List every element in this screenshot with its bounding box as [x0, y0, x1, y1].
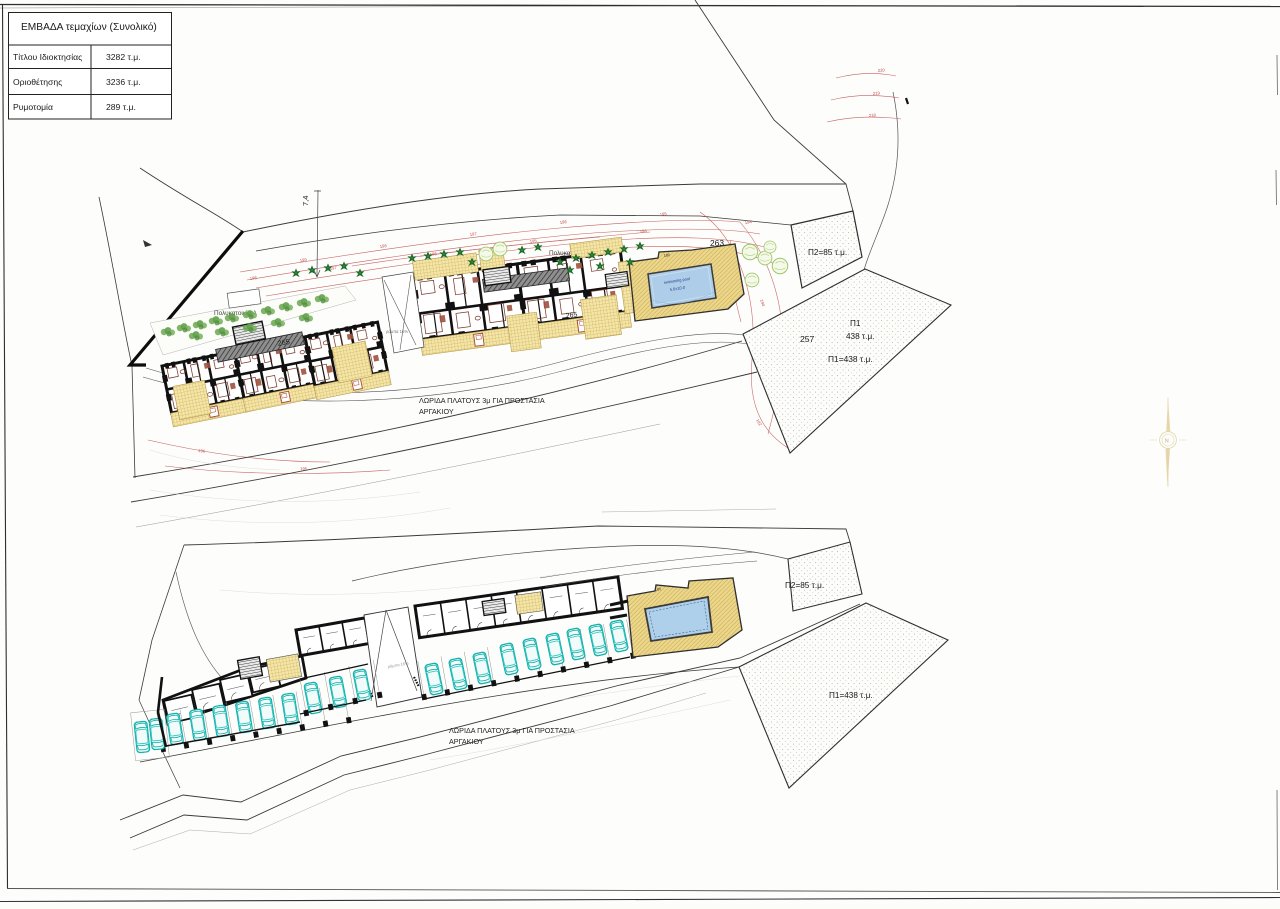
svg-text:Π1=438 τ.μ.: Π1=438 τ.μ.: [829, 691, 873, 700]
svg-text:Π1=438 τ.μ.: Π1=438 τ.μ.: [828, 354, 873, 364]
svg-text:196: 196: [429, 251, 437, 257]
svg-text:Π1: Π1: [850, 319, 861, 328]
svg-text:ΑΡΓΑΚΙΟΥ: ΑΡΓΑΚΙΟΥ: [419, 407, 454, 416]
svg-text:Οριοθέτησης: Οριοθέτησης: [13, 77, 62, 87]
svg-text:194: 194: [744, 219, 752, 225]
svg-text:3282 τ.μ.: 3282 τ.μ.: [106, 52, 141, 62]
svg-text:265: 265: [565, 312, 578, 320]
svg-text:196: 196: [559, 219, 567, 225]
svg-text:N: N: [1165, 439, 1169, 445]
svg-text:ΕΜΒΑΔΑ τεμαχίων (Συνολικό): ΕΜΒΑΔΑ τεμαχίων (Συνολικό): [21, 21, 157, 33]
svg-text:218: 218: [869, 112, 877, 118]
svg-text:195: 195: [529, 238, 537, 244]
svg-text:198: 198: [379, 243, 387, 249]
svg-text:199: 199: [299, 257, 307, 263]
svg-text:198: 198: [249, 275, 257, 281]
svg-text:Π2=85 τ.μ.: Π2=85 τ.μ.: [785, 581, 824, 590]
svg-text:Π2=85 τ.μ.: Π2=85 τ.μ.: [808, 248, 847, 257]
svg-text:197: 197: [469, 231, 477, 237]
svg-text:ράμπα 16%: ράμπα 16%: [386, 329, 408, 334]
svg-text:Τίτλου Ιδιοκτησίας: Τίτλου Ιδιοκτησίας: [13, 52, 82, 62]
svg-text:ΛΩΡΙΔΑ ΠΛΑΤΟΥΣ 3μ ΓΙΑ ΠΡΟΣΤΑΣ: ΛΩΡΙΔΑ ΠΛΑΤΟΥΣ 3μ ΓΙΑ ΠΡΟΣΤΑΣΙΑ: [449, 726, 575, 735]
svg-text:194: 194: [639, 228, 647, 234]
svg-text:ΛΩΡΙΔΑ ΠΛΑΤΟΥΣ 3μ ΓΙΑ ΠΡΟΣΤΑΣ: ΛΩΡΙΔΑ ΠΛΑΤΟΥΣ 3μ ΓΙΑ ΠΡΟΣΤΑΣΙΑ: [419, 396, 545, 405]
svg-text:195: 195: [659, 211, 667, 217]
svg-text:257: 257: [800, 334, 815, 344]
svg-text:196: 196: [198, 448, 206, 454]
svg-text:3236 τ.μ.: 3236 τ.μ.: [106, 77, 141, 87]
svg-text:7,4: 7,4: [301, 196, 310, 206]
svg-text:220: 220: [878, 67, 886, 73]
svg-text:438 τ.μ.: 438 τ.μ.: [846, 332, 874, 341]
svg-text:263: 263: [710, 238, 724, 248]
svg-text:Ρυμοτομία: Ρυμοτομία: [13, 102, 53, 112]
svg-text:ΑΡΓΑΚΙΟΥ: ΑΡΓΑΚΙΟΥ: [449, 737, 484, 746]
svg-text:219: 219: [873, 90, 881, 96]
svg-text:289 τ.μ.: 289 τ.μ.: [106, 102, 136, 112]
